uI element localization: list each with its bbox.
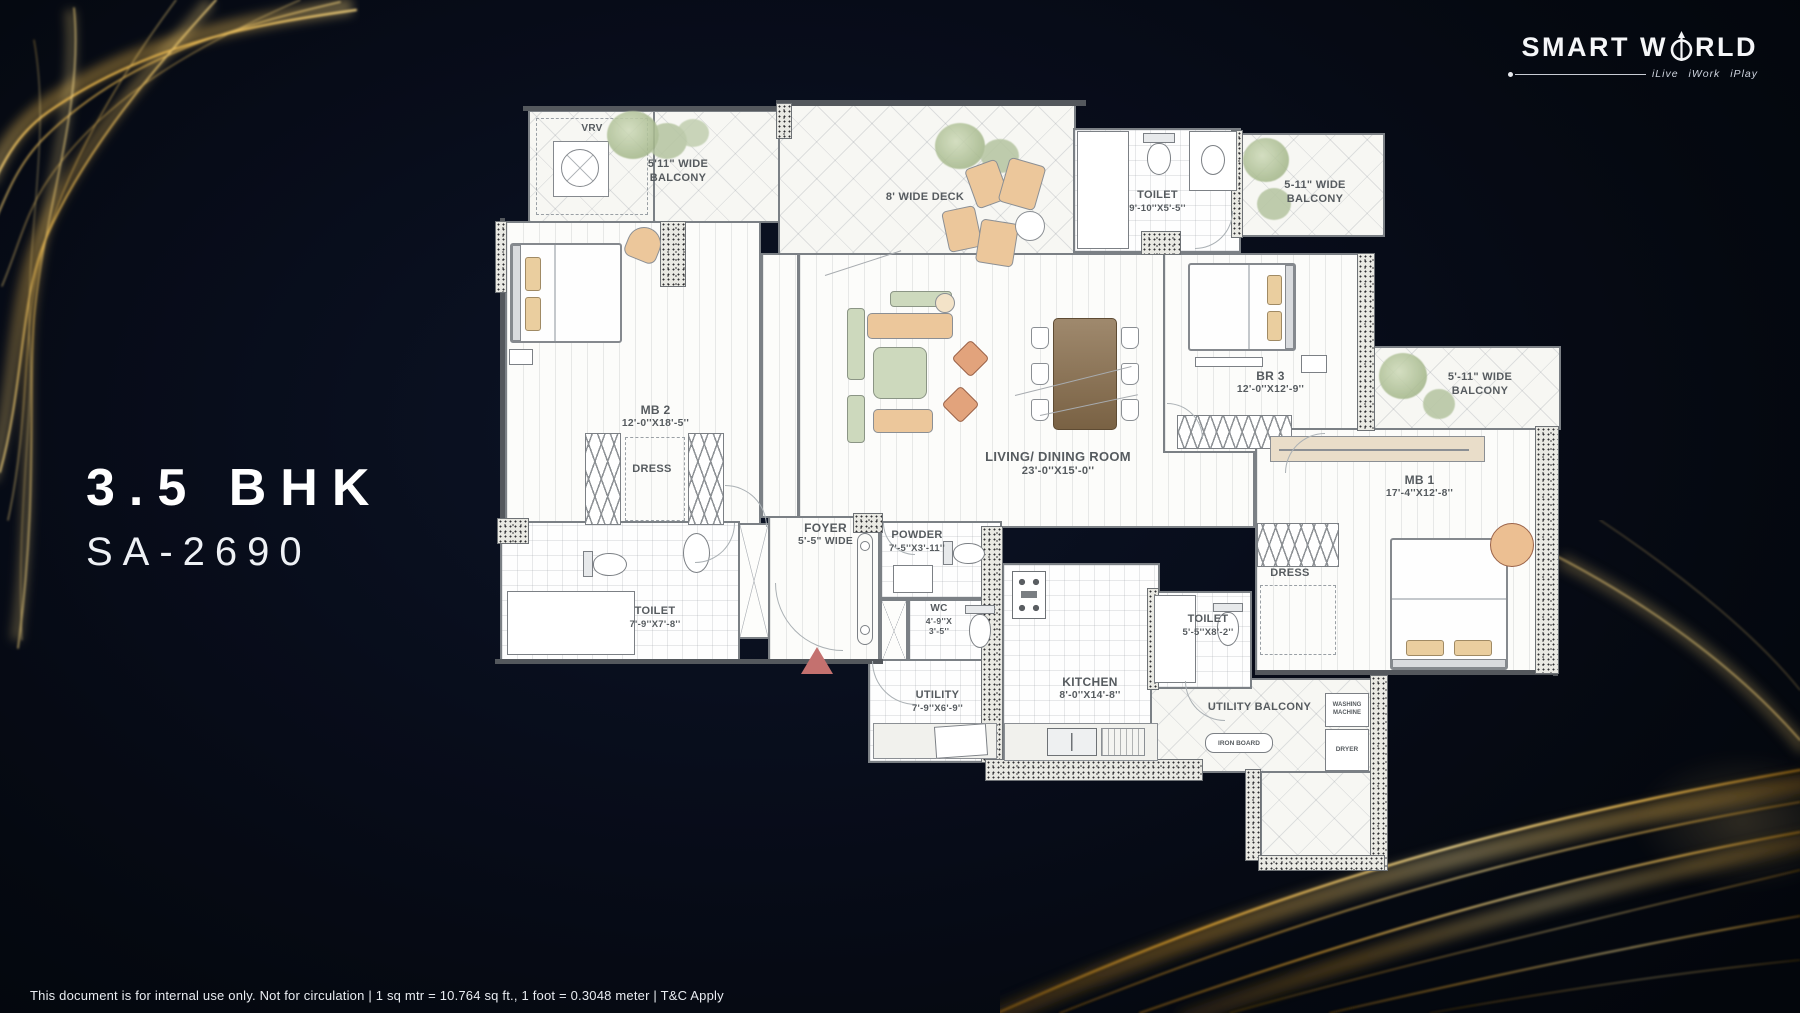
brand-underline: iLive iWork iPlay <box>1508 68 1758 80</box>
kitchen-label: KITCHEN8'-0''X14'-8'' <box>1030 675 1150 703</box>
pillow-icon <box>1454 640 1492 656</box>
pillow-icon <box>1267 311 1282 341</box>
toilet-tank-icon <box>1213 603 1243 612</box>
toilet-tank-icon <box>583 551 593 577</box>
dress-mb2-label: DRESS <box>620 463 684 477</box>
dining-table-icon <box>1053 318 1117 430</box>
toilet-icon <box>969 614 991 648</box>
wall <box>1255 670 1557 675</box>
nightstand-icon <box>509 349 533 365</box>
wall <box>523 106 783 111</box>
pillow-icon <box>525 297 541 331</box>
brand-logo: SMART W RLD iLive iWork iPlay <box>1508 30 1758 80</box>
sheet-line <box>1392 598 1506 600</box>
dining-chair-icon <box>1031 327 1049 349</box>
deck-label: 8' WIDE DECK <box>840 191 1010 205</box>
speckle-wall <box>1535 426 1559 674</box>
toilet-icon <box>953 543 985 564</box>
speckle-wall <box>495 221 507 293</box>
toilet-icon <box>1147 143 1171 175</box>
sofa-icon <box>867 313 953 339</box>
headboard <box>512 245 521 341</box>
speckle-wall <box>1357 253 1375 431</box>
speckle-wall <box>1258 855 1385 871</box>
wall <box>776 100 1086 106</box>
utility-basin-icon <box>934 723 988 759</box>
living-label: LIVING/ DINING ROOM23'-0''X15'-0'' <box>963 449 1153 479</box>
dining-chair-icon <box>1031 363 1049 385</box>
dryer-label: DRYER <box>1336 746 1359 754</box>
br3-label: BR 312'-0''X12'-9'' <box>1203 369 1338 397</box>
sofa-icon <box>873 409 933 433</box>
brand-name: SMART W RLD <box>1508 30 1758 64</box>
washing-machine-label-1: WASHING <box>1333 702 1362 710</box>
mb1-label: MB 117'-4''X12'-8'' <box>1357 473 1482 501</box>
deck-table-icon <box>1015 211 1045 241</box>
iron-board: IRON BOARD <box>1205 733 1273 753</box>
sink-icon <box>1201 145 1225 175</box>
vrv-label: VRV <box>547 123 637 136</box>
balcony-tl-label: 5'11" WIDEBALCONY <box>623 158 733 186</box>
wardrobe-icon <box>585 433 621 525</box>
toilet-tank-icon <box>965 605 995 614</box>
brand-dot-icon <box>1508 72 1513 77</box>
sheet-line <box>1248 265 1250 349</box>
pillow-icon <box>1267 275 1282 305</box>
toilet-icon <box>593 553 627 576</box>
dress-mb1-label: DRESS <box>1258 567 1322 581</box>
tree-icon <box>1243 138 1289 182</box>
speckle-wall <box>497 518 529 544</box>
vanity-icon <box>893 565 933 593</box>
brand-tagline: iLive iWork iPlay <box>1652 68 1758 80</box>
floor-plan: WASHING MACHINE DRYER IRON BOARD VRV 5'1… <box>495 103 1570 885</box>
wc-label: WC4'-9''X3'-5'' <box>913 603 965 637</box>
toilet-k-label: TOILET5'-5''X8'-2'' <box>1163 613 1253 639</box>
brand-name-right: RLD <box>1695 32 1758 63</box>
kitchen-sink-icon <box>1047 728 1097 756</box>
mb2-label: MB 212'-0''X18'-5'' <box>583 403 728 431</box>
brand-o-rocket-icon <box>1669 30 1694 64</box>
toilet-tank-icon <box>1143 133 1175 143</box>
deck-chair-icon <box>975 218 1019 267</box>
bed-icon <box>1188 263 1296 351</box>
shower-icon <box>1154 595 1196 683</box>
dining-chair-icon <box>1121 399 1139 421</box>
vrv-unit-icon <box>553 141 609 197</box>
side-table-icon <box>935 293 955 313</box>
toilet-bl-label: TOILET7'-9''X7'-8'' <box>600 605 710 631</box>
dining-chair-icon <box>1031 399 1049 421</box>
utility-balcony-label: UTILITY BALCONY <box>1187 701 1332 715</box>
bed-icon <box>510 243 622 343</box>
speckle-wall <box>1370 675 1388 871</box>
foyer-label: FOYER5'-5" WIDE <box>778 521 873 549</box>
entry-arrow-icon <box>801 647 833 674</box>
iron-board-label: IRON BOARD <box>1218 740 1260 747</box>
dress-corridor <box>625 437 685 521</box>
planter-icon <box>847 395 865 443</box>
balcony-tr-label: 5-11" WIDEBALCONY <box>1260 179 1370 207</box>
bench-knob-icon <box>860 625 870 635</box>
drainboard-icon <box>1101 728 1145 756</box>
unit-type: 3.5 BHK <box>86 458 383 518</box>
coffee-table-icon <box>873 347 927 399</box>
dining-chair-icon <box>1121 327 1139 349</box>
speckle-wall <box>776 103 792 139</box>
tree-icon <box>935 123 985 169</box>
shower-stall-wc <box>880 599 908 663</box>
washing-machine-label-2: MACHINE <box>1333 710 1361 718</box>
speckle-wall <box>985 759 1203 781</box>
hob-icon <box>1012 571 1046 619</box>
headboard <box>1285 265 1294 349</box>
dress-corridor <box>1260 585 1336 655</box>
unit-code: SA-2690 <box>86 530 383 575</box>
pillow-icon <box>1406 640 1444 656</box>
speckle-wall <box>660 221 686 287</box>
pillow-icon <box>525 257 541 291</box>
planter-icon <box>847 308 865 380</box>
toilet-top-label: TOILET9'-10''X5'-5'' <box>1100 189 1215 215</box>
unit-info: 3.5 BHK SA-2690 <box>86 458 383 575</box>
wardrobe-icon <box>1257 523 1339 567</box>
speckle-wall <box>1245 769 1261 861</box>
closet-shaft <box>738 523 770 639</box>
sheet-line <box>554 245 556 341</box>
brand-line <box>1515 74 1646 75</box>
bench-icon <box>1195 357 1263 367</box>
dryer-box: DRYER <box>1325 729 1369 771</box>
powder-label: POWDER7'-5''X3'-11'' <box>877 529 957 555</box>
speckle-wall <box>1141 231 1181 255</box>
utility-label: UTILITY7'-9''X6'-9'' <box>890 689 985 715</box>
room-corridor <box>761 253 799 518</box>
room-balcony-extension <box>1260 771 1372 859</box>
brand-name-left: SMART W <box>1522 32 1668 63</box>
vrv-fan-icon <box>561 149 599 187</box>
balcony-r-label: 5'-11" WIDEBALCONY <box>1425 371 1535 399</box>
bed-icon <box>1390 538 1508 670</box>
headboard <box>1392 659 1506 668</box>
slide-background: SMART W RLD iLive iWork iPlay 3.5 BHK SA… <box>0 0 1800 1013</box>
round-chair-icon <box>1490 523 1534 567</box>
wardrobe-icon <box>688 433 724 525</box>
footer-disclaimer: This document is for internal use only. … <box>30 988 724 1003</box>
tree-icon <box>1379 353 1427 399</box>
